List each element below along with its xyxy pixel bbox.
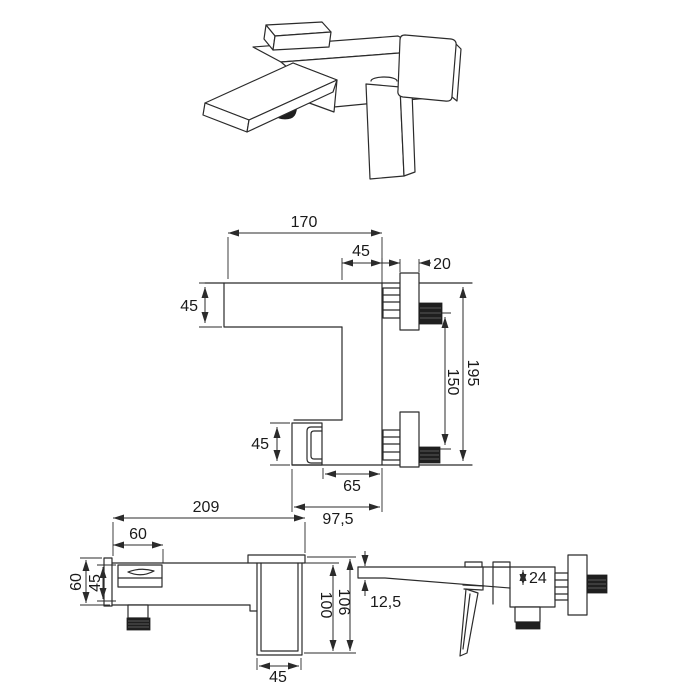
faucet-dimension-drawing: 170 45 20 45 195 150 45 xyxy=(0,0,700,700)
dim-label-outlet-height: 45 xyxy=(251,436,269,453)
cartridge-cap-right xyxy=(493,562,510,567)
side-outlet-thread xyxy=(516,622,540,629)
dim-label-spout-root-height: 24 xyxy=(529,570,547,587)
dim-label-handle-depth-outer: 106 xyxy=(335,589,352,616)
upper-wall-plate xyxy=(400,273,419,330)
dim-label-plate-depth: 20 xyxy=(433,256,451,273)
technical-drawing-page: 170 45 20 45 195 150 45 xyxy=(0,0,700,700)
dim-label-spout-tip-height: 12,5 xyxy=(370,594,401,611)
dim-label-spout-reach: 170 xyxy=(291,214,318,231)
dim-label-body-width: 45 xyxy=(352,243,370,260)
upper-threaded-pipe xyxy=(419,303,442,324)
dim-label-handle-depth: 100 xyxy=(317,592,334,619)
right-cap-front xyxy=(398,35,456,101)
lower-wall-plate xyxy=(400,412,419,467)
wall-plate-plan xyxy=(248,555,305,563)
upper-hex-nut xyxy=(383,288,400,318)
outlet-plan xyxy=(128,605,148,618)
dim-label-handle-width: 45 xyxy=(269,669,287,686)
dim-label-overall-height: 195 xyxy=(464,360,481,387)
lower-hex-nut xyxy=(383,430,400,460)
dim-label-pipe-spacing: 150 xyxy=(444,369,461,396)
dim-label-overall-length: 209 xyxy=(193,499,220,516)
dim-label-outlet-reach: 97,5 xyxy=(322,511,353,528)
dim-label-body-depth: 45 xyxy=(87,574,104,592)
cartridge-cap-left xyxy=(465,562,482,567)
dim-label-end-depth: 60 xyxy=(68,573,85,591)
dim-label-spout-height: 45 xyxy=(180,298,198,315)
spout-plan xyxy=(118,565,162,587)
dim-label-spout-length: 60 xyxy=(129,526,147,543)
side-outlet xyxy=(515,607,540,622)
side-wall-plate xyxy=(568,555,587,615)
handle-front-face xyxy=(366,84,404,179)
dim-label-outlet-inset: 65 xyxy=(343,478,361,495)
